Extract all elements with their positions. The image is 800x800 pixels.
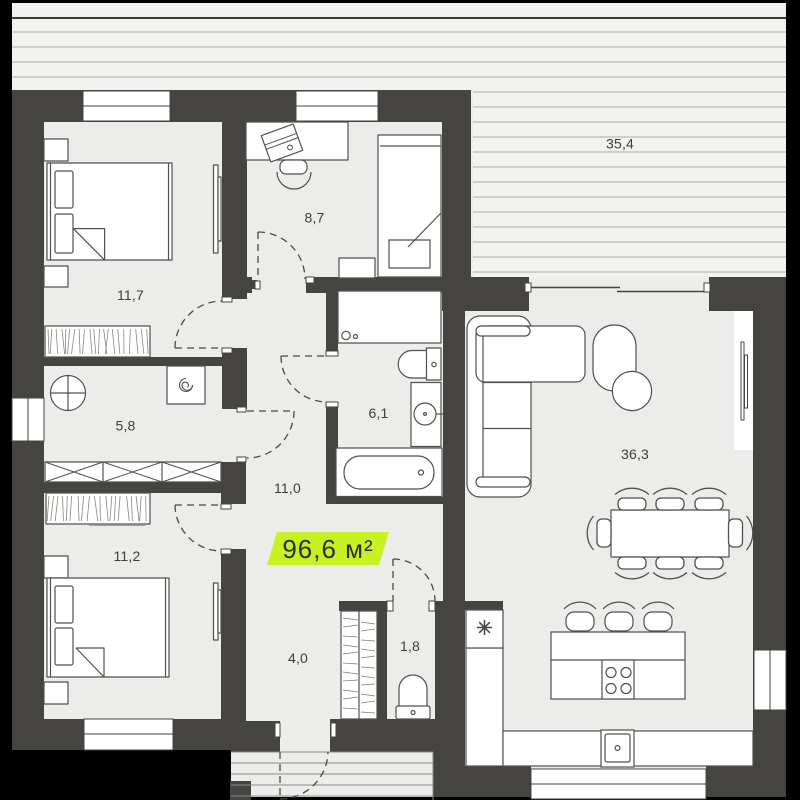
svg-text:11,7: 11,7 [117, 287, 144, 303]
svg-text:11,0: 11,0 [274, 480, 301, 496]
svg-text:11,2: 11,2 [113, 548, 140, 564]
svg-text:36,3: 36,3 [621, 446, 649, 462]
svg-text:35,4: 35,4 [606, 136, 634, 152]
svg-text:96,6 м²: 96,6 м² [282, 534, 373, 564]
svg-text:5,8: 5,8 [115, 418, 135, 434]
svg-text:1,8: 1,8 [400, 638, 420, 654]
svg-text:4,0: 4,0 [288, 650, 308, 666]
svg-text:8,7: 8,7 [304, 210, 324, 226]
svg-text:6,1: 6,1 [368, 405, 388, 421]
